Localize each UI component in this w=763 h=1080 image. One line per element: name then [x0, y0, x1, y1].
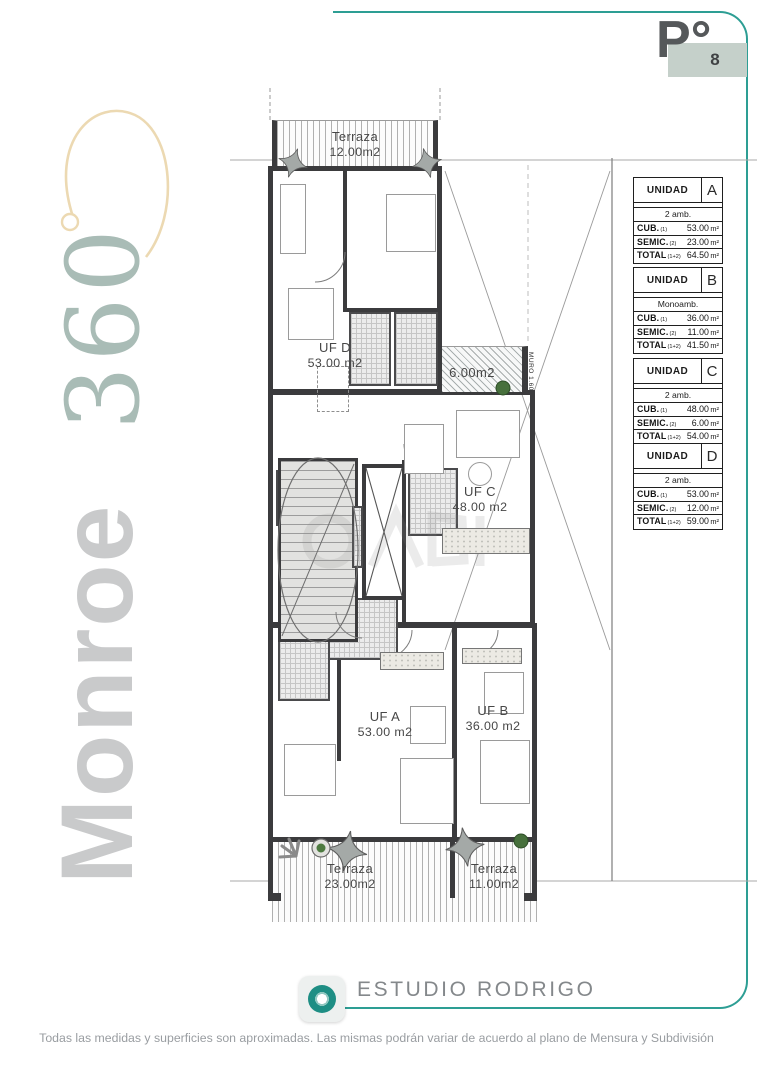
- dining-table-ufd: [288, 288, 334, 340]
- unit-table-c: UNIDADC2 amb.CUB.(1)48.00m²SEMIC.(2)6.00…: [633, 358, 723, 445]
- terrace-br-label: Terraza 11.00m2: [448, 861, 540, 892]
- row-value: 48.00: [687, 404, 709, 414]
- row-unit: m²: [710, 504, 719, 513]
- table-header: UNIDADA: [634, 178, 722, 203]
- row-label: CUB.: [637, 313, 659, 323]
- row-value: 11.00: [688, 327, 709, 337]
- unit-label-ufc: UF C 48.00 m2: [430, 484, 530, 515]
- terrace-bl-label: Terraza 23.00m2: [265, 861, 435, 892]
- row-subscript: (2): [670, 422, 677, 428]
- row-unit: m²: [710, 419, 719, 428]
- table-header: UNIDADD: [634, 444, 722, 469]
- terrace-top-label: Terraza 12.00m2: [275, 129, 435, 160]
- unit-label-ufa: UF A 53.00 m2: [335, 709, 435, 740]
- row-label: SEMIC.: [637, 418, 669, 428]
- table-unit-type: Monoamb.: [634, 298, 722, 312]
- table-header: UNIDADB: [634, 268, 722, 293]
- sofa-ufd: [280, 184, 306, 254]
- table-row-total: TOTAL(1+2)41.50m²: [634, 339, 722, 353]
- row-label: CUB.: [637, 489, 659, 499]
- table-row-total: TOTAL(1+2)59.00m²: [634, 515, 722, 529]
- table-title: UNIDAD: [634, 268, 701, 292]
- row-subscript: (1+2): [668, 520, 681, 526]
- row-unit: m²: [710, 405, 719, 414]
- row-value: 12.00: [687, 503, 709, 513]
- studio-logo-icon: [308, 985, 336, 1013]
- row-label: SEMIC.: [637, 327, 669, 337]
- table-unit-letter: C: [701, 359, 722, 383]
- kitchen-ufa: [380, 652, 444, 670]
- row-unit: m²: [710, 490, 719, 499]
- table-row-semic: SEMIC.(2)11.00m²: [634, 326, 722, 340]
- table-unit-type: 2 amb.: [634, 474, 722, 488]
- row-value: 53.00: [687, 489, 709, 499]
- table-unit-type: 2 amb.: [634, 389, 722, 403]
- row-label: CUB.: [637, 404, 659, 414]
- row-unit: m²: [710, 328, 719, 337]
- row-value: 54.00: [687, 431, 709, 441]
- unit-label-ufd: UF D 53.00 m2: [280, 340, 390, 371]
- sofa-ufb: [480, 740, 530, 804]
- studio-name: ESTUDIO RODRIGO: [357, 978, 596, 1002]
- kitchen-ufb: [462, 648, 522, 664]
- closet-ufd: [317, 366, 349, 412]
- row-subscript: (1): [660, 493, 667, 499]
- table-unit-letter: A: [701, 178, 722, 202]
- row-subscript: (1+2): [668, 254, 681, 260]
- row-value: 53.00: [687, 223, 709, 233]
- row-label: TOTAL: [637, 516, 667, 526]
- table-title: UNIDAD: [634, 359, 701, 383]
- row-subscript: (1): [660, 227, 667, 233]
- unit-table-d: UNIDADD2 amb.CUB.(1)53.00m²SEMIC.(2)12.0…: [633, 443, 723, 530]
- table-title: UNIDAD: [634, 178, 701, 202]
- row-unit: m²: [710, 341, 719, 350]
- table-row-cub: CUB.(1)36.00m²: [634, 312, 722, 326]
- dining-table-ufc: [404, 424, 444, 474]
- row-unit: m²: [710, 432, 719, 441]
- table-row-cub: CUB.(1)48.00m²: [634, 403, 722, 417]
- kitchen-island-ufc: [442, 528, 530, 554]
- row-unit: m²: [710, 517, 719, 526]
- table-row-semic: SEMIC.(2)12.00m²: [634, 502, 722, 516]
- row-subscript: (1): [660, 317, 667, 323]
- row-unit: m²: [710, 238, 719, 247]
- disclaimer-text: Todas las medidas y superficies son apro…: [0, 1031, 753, 1045]
- row-value: 23.00: [687, 237, 709, 247]
- row-subscript: (1): [660, 408, 667, 414]
- muro-label: MURO 1.60: [527, 352, 534, 391]
- table-row-total: TOTAL(1+2)64.50m²: [634, 249, 722, 263]
- row-subscript: (2): [670, 507, 677, 513]
- unit-table-b: UNIDADBMonoamb.CUB.(1)36.00m²SEMIC.(2)11…: [633, 267, 723, 354]
- plan-linework: [0, 0, 763, 1080]
- side-table-ufc: [468, 462, 492, 486]
- row-subscript: (1+2): [668, 435, 681, 441]
- row-value: 59.00: [687, 516, 709, 526]
- row-value: 41.50: [687, 340, 709, 350]
- row-value: 64.50: [687, 250, 709, 260]
- table-row-total: TOTAL(1+2)54.00m²: [634, 430, 722, 444]
- table-row-cub: CUB.(1)53.00m²: [634, 222, 722, 236]
- table-unit-type: 2 amb.: [634, 208, 722, 222]
- studio-logo-tile: [299, 976, 345, 1022]
- table-row-cub: CUB.(1)53.00m²: [634, 488, 722, 502]
- row-label: CUB.: [637, 223, 659, 233]
- table-row-semic: SEMIC.(2)23.00m²: [634, 236, 722, 250]
- row-unit: m²: [710, 224, 719, 233]
- table-title: UNIDAD: [634, 444, 701, 468]
- row-label: TOTAL: [637, 250, 667, 260]
- row-label: SEMIC.: [637, 503, 669, 513]
- row-label: TOTAL: [637, 340, 667, 350]
- unit-label-ufb: UF B 36.00 m2: [452, 703, 534, 734]
- row-subscript: (2): [670, 241, 677, 247]
- row-unit: m²: [710, 251, 719, 260]
- row-unit: m²: [710, 314, 719, 323]
- row-label: SEMIC.: [637, 237, 669, 247]
- floorplan-flyer-page: P° 8 Monroe 360: [0, 0, 763, 1080]
- row-subscript: (2): [670, 331, 677, 337]
- sofa-ufa: [400, 758, 454, 824]
- row-label: TOTAL: [637, 431, 667, 441]
- row-value: 6.00: [692, 418, 709, 428]
- bed-ufa: [284, 744, 336, 796]
- table-row-semic: SEMIC.(2)6.00m²: [634, 417, 722, 431]
- balcony-label: 6.00m2: [432, 365, 512, 380]
- row-subscript: (1+2): [668, 344, 681, 350]
- bed-ufd: [386, 194, 436, 252]
- table-unit-letter: D: [701, 444, 722, 468]
- table-header: UNIDADC: [634, 359, 722, 384]
- unit-table-a: UNIDADA2 amb.CUB.(1)53.00m²SEMIC.(2)23.0…: [633, 177, 723, 264]
- table-unit-letter: B: [701, 268, 722, 292]
- sofa-ufc: [456, 410, 520, 458]
- row-value: 36.00: [687, 313, 709, 323]
